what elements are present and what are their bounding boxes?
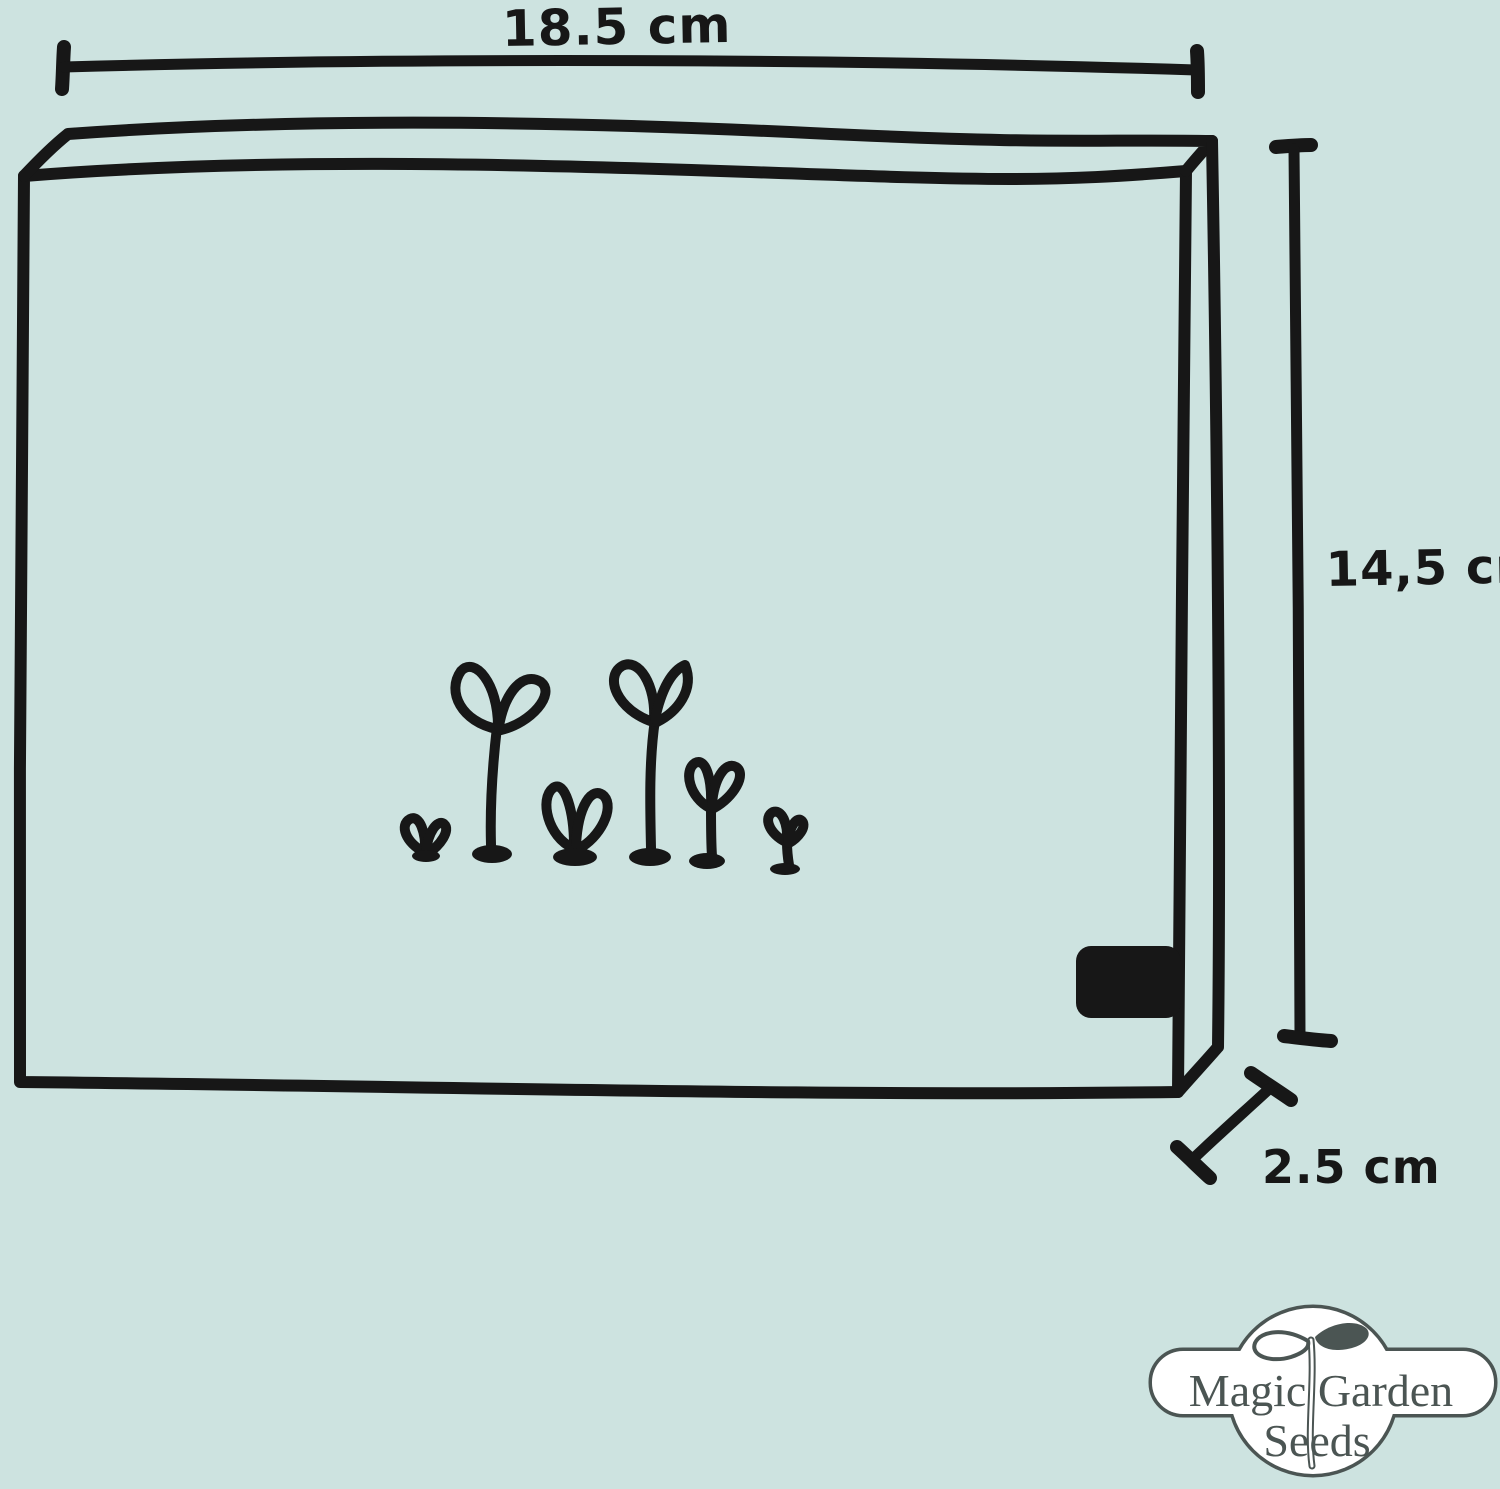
width-dimension-cap-right <box>1197 51 1198 92</box>
logo-title: Magic Garden <box>1189 1365 1453 1416</box>
width-dimension-line <box>64 61 1196 70</box>
box-front-face <box>20 164 1186 1093</box>
diagram-canvas: 18.5 cm 14,5 cm 2.5 cm <box>0 0 1500 1489</box>
height-dimension: 14,5 cm <box>1276 145 1500 1041</box>
sprouts-illustration <box>405 664 804 875</box>
depth-dimension-line <box>1194 1089 1269 1158</box>
sprout-3 <box>546 786 607 866</box>
sprout-2 <box>455 667 545 863</box>
depth-dimension-label: 2.5 cm <box>1262 1140 1441 1194</box>
height-dimension-line <box>1294 149 1300 1036</box>
brand-logo: Magic Garden Seeds <box>1152 1308 1494 1474</box>
depth-dimension: 2.5 cm <box>1177 1073 1441 1194</box>
product-box <box>20 123 1219 1094</box>
sprout-4 <box>614 664 688 866</box>
width-dimension: 18.5 cm <box>62 0 1198 92</box>
sprout-6 <box>768 812 803 875</box>
height-dimension-label: 14,5 cm <box>1325 538 1500 598</box>
height-dimension-cap-bottom <box>1284 1036 1331 1041</box>
logo-subtitle: Seeds <box>1263 1415 1370 1466</box>
width-dimension-label: 18.5 cm <box>501 0 731 58</box>
sprout-1 <box>405 818 446 862</box>
label-sticker <box>1076 946 1181 1018</box>
sprout-5 <box>689 762 740 869</box>
